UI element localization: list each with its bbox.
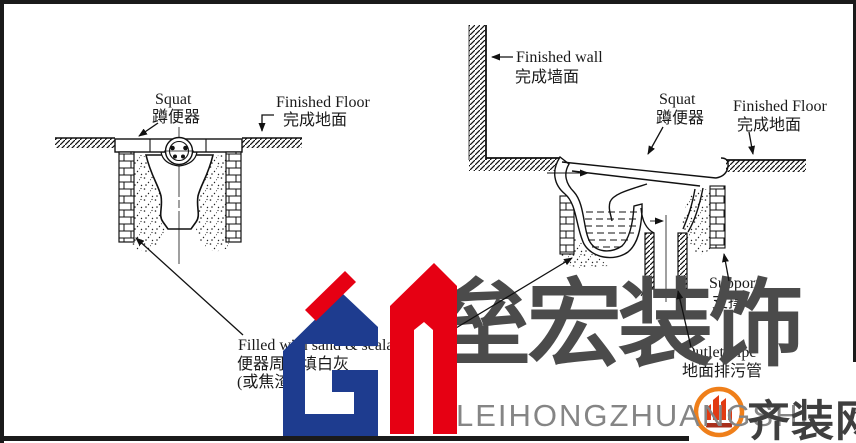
label-wall-en: Finished wall [516, 49, 603, 66]
label-squat-left-en: Squat [155, 91, 192, 108]
drain-outlet [164, 138, 194, 165]
label-squat-left-cn: 蹲便器 [152, 108, 200, 126]
finished-wall-hatch [469, 25, 486, 160]
label-floor-left-en: Finished Floor [276, 94, 370, 111]
label-squat-right-cn: 蹲便器 [656, 109, 704, 127]
label-wall-cn: 完成墙面 [515, 68, 579, 86]
diagram-canvas: Squat 蹲便器 Finished Floor 完成地面 Filled wit… [0, 0, 856, 443]
label-floor-left-cn: 完成地面 [283, 111, 347, 129]
gh-logo-icon [276, 256, 466, 443]
watermark-site-name: 齐装网 [747, 387, 856, 443]
label-floor-right-cn: 完成地面 [737, 116, 801, 134]
watermark-brand-text: 垒宏装饰 [436, 276, 856, 376]
label-floor-right-en: Finished Floor [733, 98, 827, 115]
label-squat-right-en: Squat [659, 91, 696, 108]
